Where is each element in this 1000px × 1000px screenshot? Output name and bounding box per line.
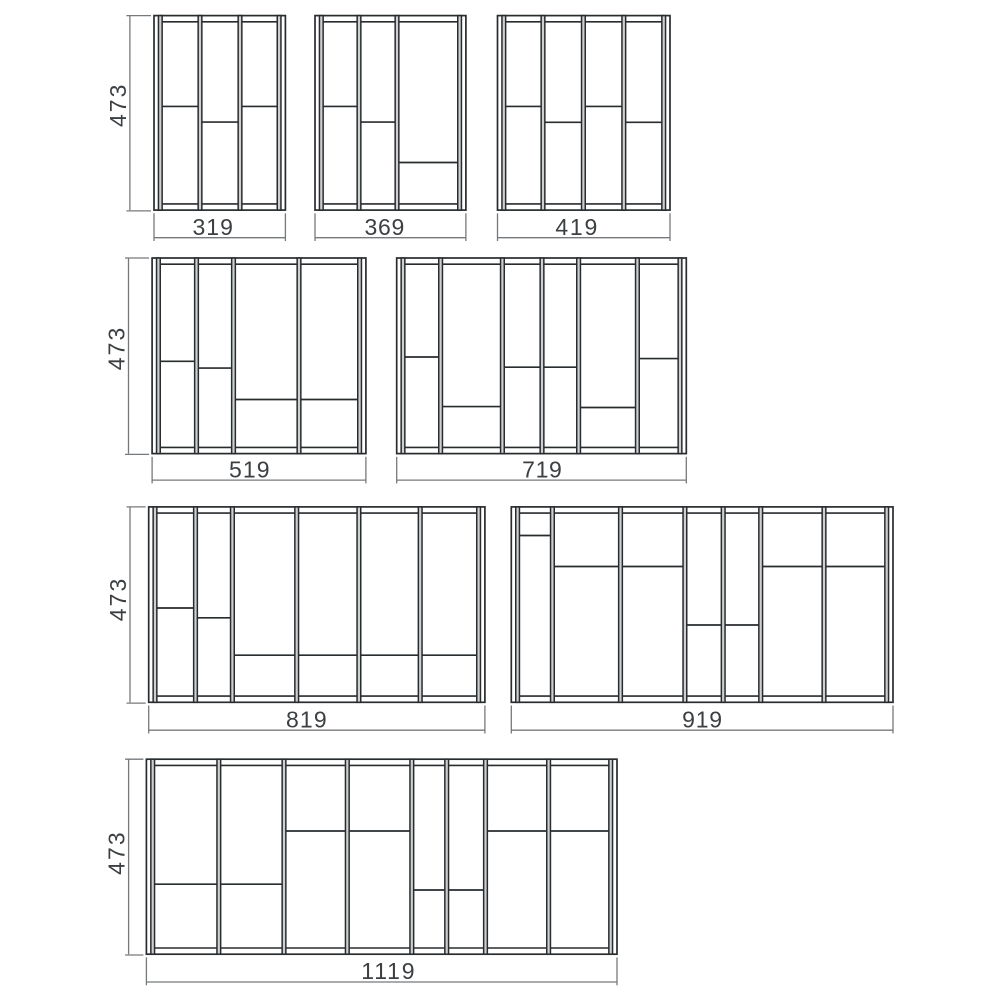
svg-text:473: 473 — [103, 328, 129, 371]
svg-text:319: 319 — [192, 214, 233, 240]
svg-text:473: 473 — [105, 85, 131, 128]
svg-text:719: 719 — [522, 456, 562, 482]
svg-text:419: 419 — [555, 214, 597, 240]
svg-text:473: 473 — [104, 832, 130, 875]
svg-text:369: 369 — [365, 214, 405, 240]
svg-text:919: 919 — [682, 706, 722, 732]
svg-text:819: 819 — [286, 706, 327, 732]
svg-text:1119: 1119 — [361, 958, 414, 984]
svg-text:519: 519 — [229, 456, 270, 482]
svg-text:473: 473 — [105, 579, 131, 622]
